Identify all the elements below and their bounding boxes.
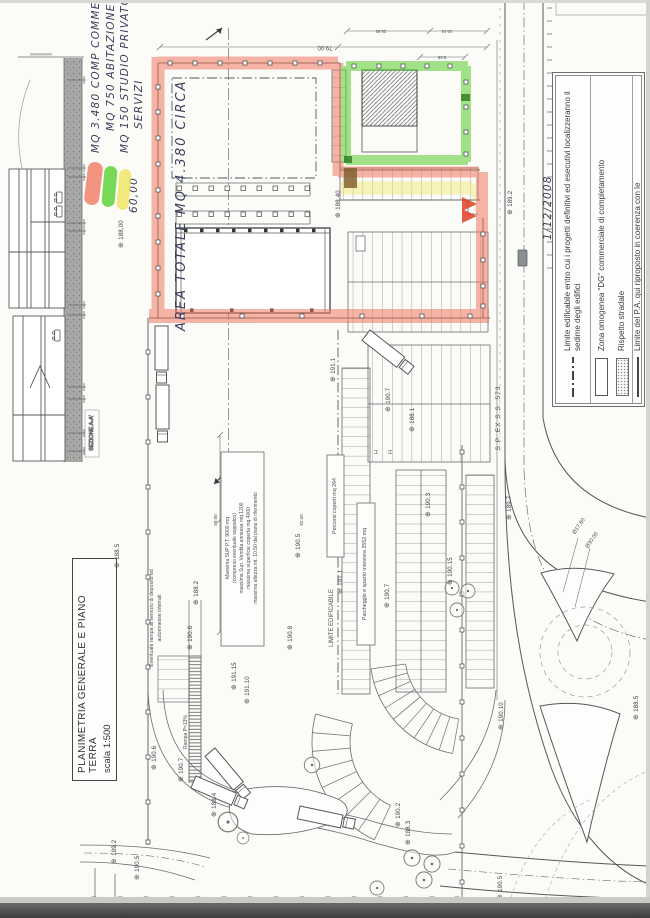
dim-1910: 19.10	[441, 29, 452, 34]
highlight-overlap-mark	[344, 168, 357, 188]
handicap-stall-1: H	[374, 450, 380, 454]
dim-diameter-1: Ø17.80	[572, 517, 587, 535]
scan-edge-bottom	[0, 903, 650, 918]
spot-elevation: 190.2	[394, 803, 402, 827]
handwritten-area-total: AREA TOTALE MQ 4.380 CIRCA	[174, 47, 189, 331]
note-rampa-1: Eventuale rampa al servizio di deposito …	[149, 569, 155, 667]
road-label: S.P. EX S.S. 573	[495, 386, 502, 451]
dim-965: 9.65	[437, 55, 446, 60]
page-frame-fragment	[556, 2, 648, 15]
spot-elevation: 190.6	[186, 626, 194, 650]
green-tick-2	[344, 156, 352, 163]
note-massima-2: (compreso eventuale soppalco)	[232, 513, 238, 583]
note-rampa-2: autorimesse interrati	[157, 595, 163, 642]
spot-elevation: 190.5	[133, 856, 141, 880]
building-hatched	[362, 70, 417, 152]
spot-elevation: 188.1	[408, 408, 416, 432]
dim-2650: 26.50	[375, 29, 386, 34]
spot-elevation: 189.2	[506, 191, 514, 215]
note-massima-1: Massima SUP P.T. 9000 mq	[225, 517, 231, 579]
legend-label: Limite edificabile entro cui i progetti …	[563, 76, 583, 351]
legend-row-limite-edificabile: Limite edificabile entro cui i progetti …	[556, 76, 590, 403]
legend-label: Zona omogenea "DG" commerciale di comple…	[597, 76, 607, 351]
handwritten-area-studio: MQ 150 STUDIO PRIVATO O	[119, 15, 131, 153]
title-block: PLANIMETRIA GENERALE E PIANO TERRA scala…	[72, 558, 117, 781]
section-building-upper	[9, 169, 65, 308]
handwritten-area-commercial: MQ 3.480 COMP COMMERCIALE	[90, 11, 102, 153]
spot-elevation: 188.5	[113, 544, 121, 568]
dim-79: 79.00	[317, 44, 333, 50]
spot-elevation: 190.10	[497, 702, 505, 730]
dim-8250: 82.50	[299, 514, 304, 526]
building-footprint	[176, 228, 330, 313]
outline-rect-symbol	[595, 358, 608, 396]
legend-label: Rispetto stradale	[617, 76, 627, 351]
spot-elevation: 188.4	[210, 793, 218, 817]
section-elevation-drawings: SEZIONE A-A'	[9, 53, 99, 462]
solid-line-symbol	[637, 357, 639, 397]
section-label: SEZIONE A-A'	[89, 415, 95, 451]
label-percorsi-coperti: Percorsi coperti mq 264	[332, 478, 338, 534]
dim-diameter-2: Ø30.00	[585, 531, 600, 549]
green-tick-1	[461, 94, 470, 101]
spot-elevation: 188.2	[192, 581, 200, 605]
spot-elevation: 189.2	[110, 840, 118, 864]
spot-elevation: 188.5	[632, 696, 640, 720]
spot-elevation: 190.7	[383, 584, 391, 608]
spot-elevation: 190.7	[177, 758, 185, 782]
scanned-site-plan-sheet: SEZIONE A-A'	[0, 0, 650, 918]
spot-elevation: 191.10	[243, 676, 251, 704]
drawing-scale: scala 1:500	[102, 566, 113, 773]
handwritten-area-studio-2: SERVIZI	[133, 79, 145, 129]
legend-label: Limite del P.A. qui riproposto in coeren…	[633, 76, 643, 351]
dim-60: 60.00	[213, 514, 218, 526]
scan-edge-top	[0, 0, 650, 3]
spot-elevation: 190.8	[286, 626, 294, 650]
spot-elevation: 188.3	[404, 821, 412, 845]
note-massima-3: massima Sup. Vendita annessa mq 1200	[239, 502, 245, 593]
legend-row-rispetto-stradale: Rispetto stradale	[612, 76, 632, 403]
dotted-rect-symbol	[616, 358, 629, 396]
legend-row-limite-pa: Limite del P.A. qui riproposto in coeren…	[632, 76, 643, 403]
spot-elevation: 191.1	[336, 570, 344, 594]
spot-elevation: 191.15	[230, 662, 238, 690]
spot-elevation: 188.40	[334, 190, 342, 218]
label-rampa-slope: Rampa P=13%	[183, 715, 189, 749]
spot-elevation: 190.6	[150, 746, 158, 770]
spot-elevation: 190.3	[424, 493, 432, 517]
handwritten-area-residential: MQ 750 ABITAZIONE	[105, 37, 117, 131]
legend-row-zona-dg: Zona omogenea "DG" commerciale di comple…	[590, 76, 612, 403]
spot-elevation: 189.7	[505, 496, 513, 520]
legend: Limite edificabile entro cui i progetti …	[552, 72, 645, 407]
spot-elevation: 188,00	[117, 220, 125, 248]
scan-edge-right	[646, 0, 650, 918]
handicap-stall-2: H	[388, 450, 394, 454]
spot-elevation: 190.5	[294, 534, 302, 558]
spot-elevation: 191.1	[329, 358, 337, 382]
label-limite-edificabile: LIMITE EDIFICABILE	[329, 589, 335, 647]
note-massima-4: massima superficie coperta mq 4000	[246, 507, 252, 589]
drawing-title: PLANIMETRIA GENERALE E PIANO TERRA	[77, 566, 99, 773]
note-massima-5: massima altezza mt. 10,50 dal piano di r…	[253, 492, 259, 604]
dash-dot-line-symbol	[572, 357, 573, 397]
spot-elevation: 190.15	[446, 557, 454, 585]
spot-elevation: 190.7	[384, 388, 392, 412]
label-parcheggio: Parcheggio e spazio manovra 3552 mq	[362, 528, 368, 620]
